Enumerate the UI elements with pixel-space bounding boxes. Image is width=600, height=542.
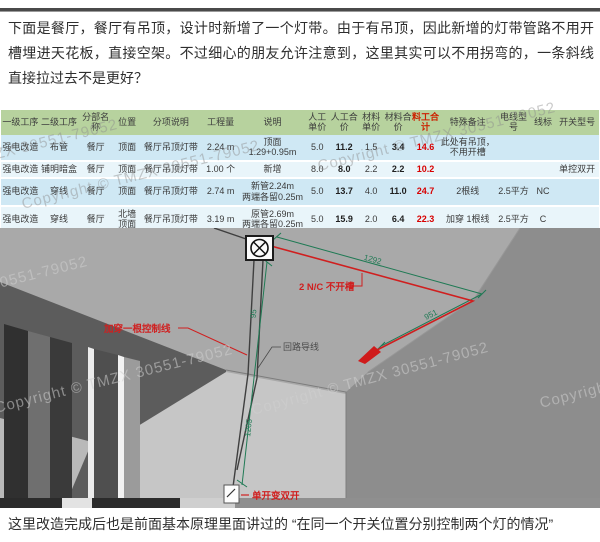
scene-canvas: 1292 951 1205 95 2 N/C 不开槽 bbox=[0, 228, 600, 508]
column-header-7: 人工单价 bbox=[304, 110, 330, 135]
column-highlight bbox=[118, 355, 124, 508]
table-cell: 布管 bbox=[40, 135, 79, 162]
article-page: 下面是餐厅，餐厅有吊顶，设计时新增了一个灯带。由于有吊顶，因此新增的灯带管路不用… bbox=[0, 0, 600, 542]
column-stripe bbox=[50, 337, 72, 508]
switch-icon bbox=[224, 485, 239, 503]
column-header-10: 材料合价 bbox=[384, 110, 411, 135]
label-no-groove: 2 N/C 不开槽 bbox=[299, 281, 355, 293]
table-cell: 14.6 bbox=[412, 135, 439, 162]
column-header-12: 特殊备注 bbox=[439, 110, 496, 135]
bottom-band bbox=[0, 498, 62, 508]
table-cell bbox=[555, 135, 599, 162]
table-cell bbox=[496, 135, 531, 162]
table-cell: 10.2 bbox=[412, 161, 439, 178]
column-header-2: 分部名称 bbox=[78, 110, 113, 135]
column-header-9: 材料单价 bbox=[358, 110, 384, 135]
table-cell: 餐厅吊顶灯带 bbox=[141, 161, 200, 178]
dim-value-small: 95 bbox=[249, 308, 259, 318]
table-cell bbox=[531, 135, 555, 162]
table-cell: 强电改造 bbox=[1, 178, 40, 206]
table-cell: 3.4 bbox=[384, 135, 411, 162]
table-cell: 强电改造 bbox=[1, 135, 40, 162]
table-cell bbox=[439, 161, 496, 178]
table-cell: NC bbox=[531, 178, 555, 206]
column-highlight bbox=[88, 347, 94, 508]
table-cell: 1.00 个 bbox=[200, 161, 241, 178]
column-header-11: 料工合计 bbox=[412, 110, 439, 135]
column-header-8: 人工合价 bbox=[330, 110, 357, 135]
table-cell: 餐厅 bbox=[78, 135, 113, 162]
table-cell: 2根线 bbox=[439, 178, 496, 206]
column-header-4: 分项说明 bbox=[141, 110, 200, 135]
3d-render: 1292 951 1205 95 2 N/C 不开槽 bbox=[0, 228, 600, 508]
table-cell: 顶面 bbox=[113, 178, 141, 206]
column-header-0: 一级工序 bbox=[1, 110, 40, 135]
table-body: 强电改造布管餐厅顶面餐厅吊顶灯带2.24 m顶面 1.29+0.95m5.011… bbox=[1, 135, 599, 234]
table-cell: 餐厅吊顶灯带 bbox=[141, 135, 200, 162]
table-cell: 4.0 bbox=[358, 178, 384, 206]
bottom-band bbox=[92, 498, 180, 508]
column-header-15: 开关型号 bbox=[555, 110, 599, 135]
label-add-control-wire: 加穿一根控制线 bbox=[103, 323, 171, 335]
table-row: 强电改造铺明暗盒餐厅顶面餐厅吊顶灯带1.00 个新增8.08.02.22.210… bbox=[1, 161, 599, 178]
table-cell: 2.2 bbox=[358, 161, 384, 178]
table-header-row: 一级工序二级工序分部名称位置分项说明工程量说明人工单价人工合价材料单价材料合价料… bbox=[1, 110, 599, 135]
table-cell bbox=[496, 161, 531, 178]
column-stripe bbox=[28, 331, 50, 508]
table-cell: 11.2 bbox=[330, 135, 357, 162]
table-row: 强电改造穿线餐厅顶面餐厅吊顶灯带2.74 m新管2.24m 两端各留0.25m5… bbox=[1, 178, 599, 206]
bottom-paragraph: 这里改造完成后也是前面基本原理里面讲过的 “在同一个开关位置分别控制两个灯的情况… bbox=[8, 513, 598, 535]
table-cell: 新增 bbox=[241, 161, 304, 178]
table-cell: 24.7 bbox=[412, 178, 439, 206]
table-cell: 铺明暗盒 bbox=[40, 161, 79, 178]
column-header-3: 位置 bbox=[113, 110, 141, 135]
table-cell: 2.5平方 bbox=[496, 178, 531, 206]
top-paragraph: 下面是餐厅，餐厅有吊顶，设计时新增了一个灯带。由于有吊顶，因此新增的灯带管路不用… bbox=[8, 16, 594, 91]
label-switch-change: 单开变双开 bbox=[252, 490, 300, 502]
label-circuit-wire: 回路导线 bbox=[283, 341, 319, 352]
table-cell: 顶面 bbox=[113, 135, 141, 162]
column-header-13: 电线型号 bbox=[496, 110, 531, 135]
table-cell: 顶面 1.29+0.95m bbox=[241, 135, 304, 162]
table-cell: 2.2 bbox=[384, 161, 411, 178]
table-cell: 餐厅 bbox=[78, 161, 113, 178]
table-cell bbox=[555, 178, 599, 206]
table-cell: 单控双开 bbox=[555, 161, 599, 178]
room-planes bbox=[0, 228, 600, 508]
table-row: 强电改造布管餐厅顶面餐厅吊顶灯带2.24 m顶面 1.29+0.95m5.011… bbox=[1, 135, 599, 162]
table-cell: 强电改造 bbox=[1, 161, 40, 178]
table-cell: 13.7 bbox=[330, 178, 357, 206]
table-cell: 2.74 m bbox=[200, 178, 241, 206]
table-cell: 穿线 bbox=[40, 178, 79, 206]
column-stripe bbox=[124, 357, 140, 508]
table-cell: 11.0 bbox=[384, 178, 411, 206]
top-divider bbox=[0, 8, 600, 12]
bottom-band bbox=[62, 498, 92, 508]
column-header-1: 二级工序 bbox=[40, 110, 79, 135]
table-cell: 1.5 bbox=[358, 135, 384, 162]
junction-box-icon bbox=[246, 236, 273, 260]
column-header-6: 说明 bbox=[241, 110, 304, 135]
table-cell: 餐厅吊顶灯带 bbox=[141, 178, 200, 206]
column-stripe bbox=[94, 349, 118, 508]
column-stripe bbox=[4, 324, 28, 508]
table-cell: 此处有吊顶，不用开槽 bbox=[439, 135, 496, 162]
table-cell: 顶面 bbox=[113, 161, 141, 178]
table-cell: 5.0 bbox=[304, 135, 330, 162]
renovation-quote-table: 一级工序二级工序分部名称位置分项说明工程量说明人工单价人工合价材料单价材料合价料… bbox=[1, 110, 599, 234]
dim-value-vertical: 1205 bbox=[243, 418, 254, 437]
column-header-14: 线标 bbox=[531, 110, 555, 135]
column-header-5: 工程量 bbox=[200, 110, 241, 135]
table-cell: 餐厅 bbox=[78, 178, 113, 206]
table-cell: 2.24 m bbox=[200, 135, 241, 162]
table-cell: 新管2.24m 两端各留0.25m bbox=[241, 178, 304, 206]
table-cell bbox=[531, 161, 555, 178]
table-cell: 8.0 bbox=[330, 161, 357, 178]
table-cell: 5.0 bbox=[304, 178, 330, 206]
table-cell: 8.0 bbox=[304, 161, 330, 178]
